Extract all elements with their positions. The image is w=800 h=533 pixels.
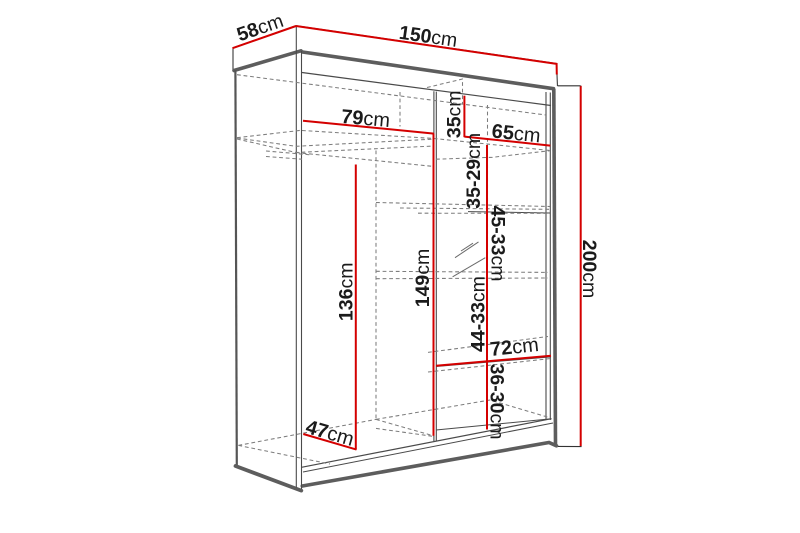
svg-text:58cm: 58cm <box>234 10 286 46</box>
svg-text:149cm: 149cm <box>412 249 434 308</box>
svg-text:44-33cm: 44-33cm <box>468 276 490 352</box>
svg-text:36-30cm: 36-30cm <box>485 364 507 440</box>
svg-text:47cm: 47cm <box>303 416 356 451</box>
svg-text:35cm: 35cm <box>443 90 465 138</box>
svg-text:200cm: 200cm <box>578 240 600 299</box>
svg-text:79cm: 79cm <box>340 106 391 132</box>
svg-text:150cm: 150cm <box>398 22 459 52</box>
svg-text:45-33cm: 45-33cm <box>486 206 508 282</box>
svg-text:136cm: 136cm <box>336 263 358 322</box>
svg-text:35-29cm: 35-29cm <box>463 133 485 209</box>
svg-text:65cm: 65cm <box>491 121 542 148</box>
